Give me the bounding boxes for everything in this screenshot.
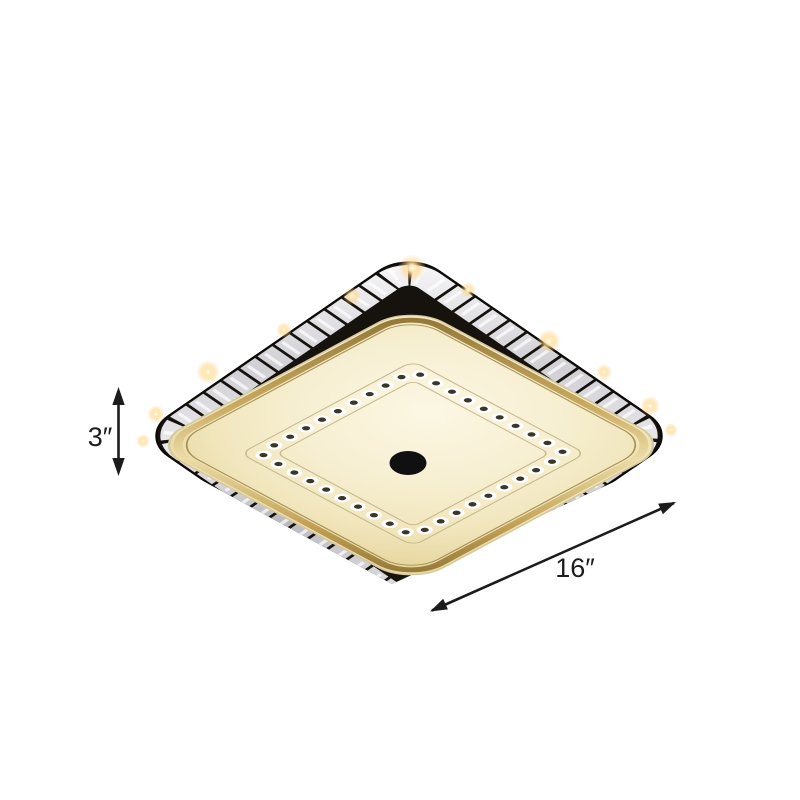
sparkle-glint-icon (640, 396, 660, 416)
height-dimension-label: 3″ (88, 422, 113, 452)
sparkle-glint-icon (196, 360, 220, 384)
sparkle-glint-icon (460, 282, 476, 298)
product-image-canvas: 3″ 16″ (0, 0, 800, 800)
ceiling-light-dimension-illustration: 3″ 16″ (0, 0, 800, 800)
center-hole (390, 451, 427, 475)
sparkle-glint-icon (147, 405, 165, 423)
sparkle-glint-icon (276, 322, 292, 338)
sparkle-glint-icon (343, 287, 361, 305)
sparkle-glint-icon (136, 434, 150, 448)
sparkle-glint-icon (596, 364, 612, 380)
sparkle-glint-icon (664, 423, 678, 437)
sparkle-glint-icon (537, 329, 561, 353)
sparkle-glint-icon (398, 254, 426, 282)
width-dimension-label: 16″ (555, 553, 595, 583)
